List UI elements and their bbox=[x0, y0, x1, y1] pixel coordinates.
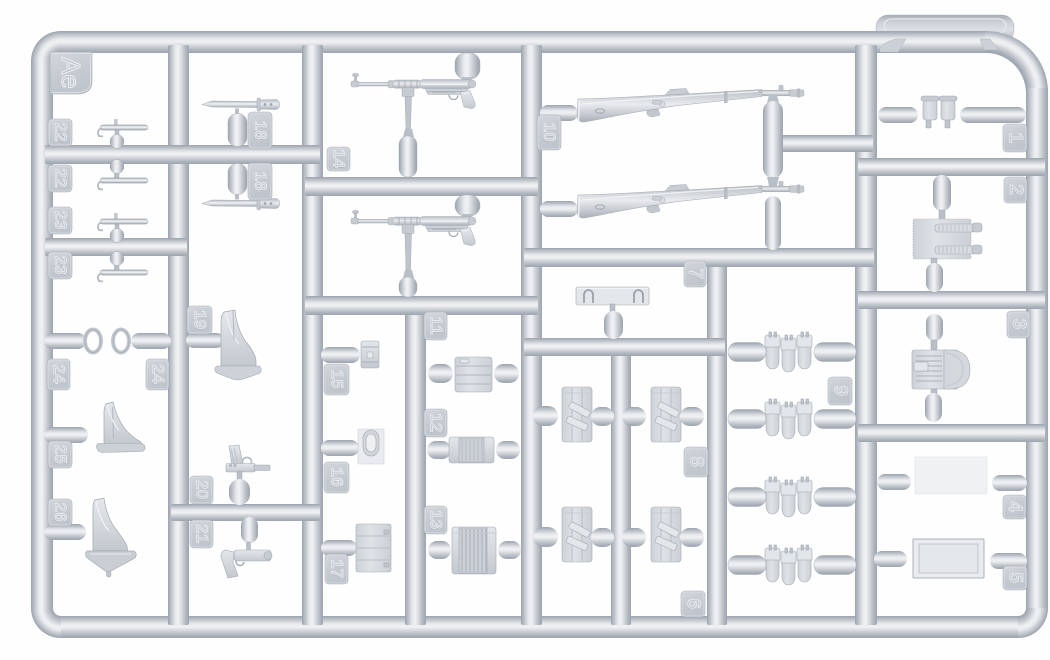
svg-text:24: 24 bbox=[50, 365, 68, 385]
svg-text:24: 24 bbox=[149, 365, 167, 385]
svg-text:10: 10 bbox=[540, 123, 558, 142]
svg-text:26: 26 bbox=[51, 503, 69, 522]
svg-text:23: 23 bbox=[51, 211, 69, 230]
svg-text:19: 19 bbox=[191, 310, 209, 329]
svg-text:6: 6 bbox=[683, 598, 704, 609]
svg-text:16: 16 bbox=[328, 468, 346, 487]
svg-text:25: 25 bbox=[51, 445, 69, 464]
svg-text:1: 1 bbox=[1005, 132, 1026, 143]
svg-text:4: 4 bbox=[1004, 501, 1025, 512]
svg-text:18: 18 bbox=[251, 121, 269, 140]
svg-text:18: 18 bbox=[251, 172, 269, 191]
svg-text:7: 7 bbox=[685, 268, 706, 279]
svg-text:12: 12 bbox=[427, 413, 445, 432]
svg-text:3: 3 bbox=[1008, 319, 1029, 330]
svg-text:20: 20 bbox=[193, 480, 211, 499]
svg-text:9: 9 bbox=[830, 385, 851, 396]
svg-text:13: 13 bbox=[427, 510, 445, 529]
svg-text:17: 17 bbox=[328, 559, 346, 578]
svg-text:8: 8 bbox=[686, 456, 707, 467]
svg-text:Ae: Ae bbox=[56, 57, 86, 89]
svg-text:2: 2 bbox=[1005, 184, 1026, 195]
svg-text:23: 23 bbox=[51, 256, 69, 275]
svg-text:5: 5 bbox=[1005, 572, 1026, 583]
svg-text:22: 22 bbox=[51, 123, 69, 142]
svg-text:15: 15 bbox=[328, 370, 346, 389]
svg-text:11: 11 bbox=[427, 317, 445, 335]
svg-text:22: 22 bbox=[51, 169, 69, 188]
svg-text:21: 21 bbox=[193, 524, 211, 543]
svg-text:14: 14 bbox=[330, 149, 348, 169]
